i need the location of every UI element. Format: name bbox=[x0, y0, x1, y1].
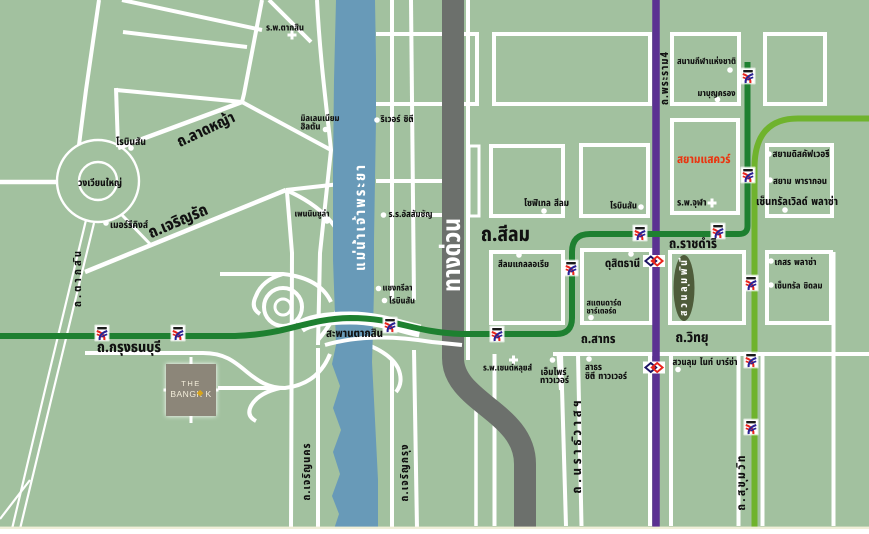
svg-text:BANGK K: BANGK K bbox=[170, 389, 211, 399]
svg-text:THE: THE bbox=[181, 379, 201, 388]
